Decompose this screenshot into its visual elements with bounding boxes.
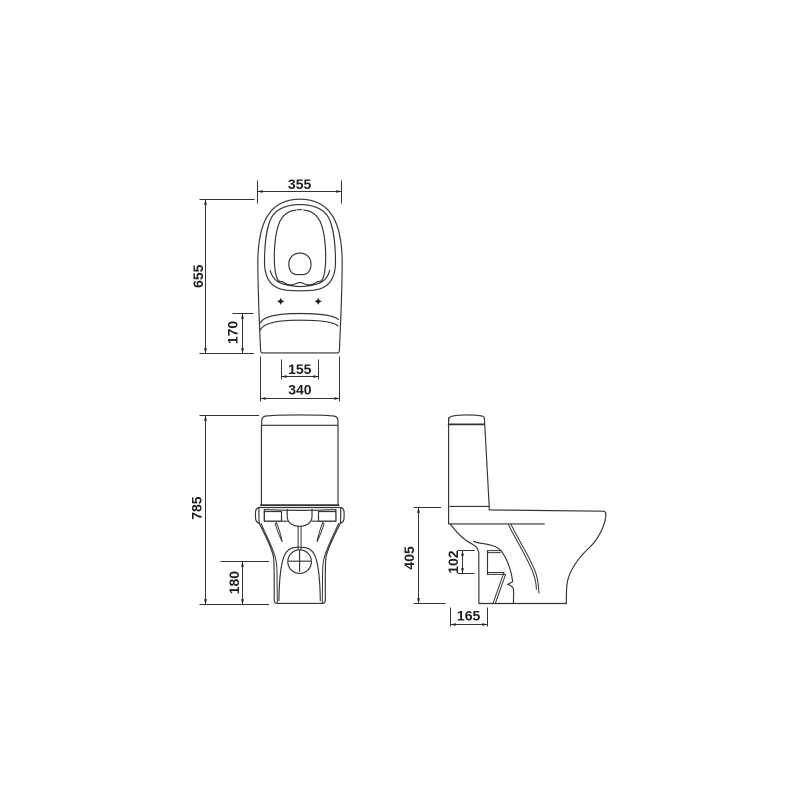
svg-text:340: 340 bbox=[288, 382, 312, 398]
svg-text:655: 655 bbox=[190, 264, 206, 288]
svg-text:170: 170 bbox=[225, 321, 241, 345]
svg-text:180: 180 bbox=[226, 571, 242, 595]
svg-text:165: 165 bbox=[457, 608, 481, 624]
svg-text:405: 405 bbox=[401, 546, 417, 570]
svg-text:102: 102 bbox=[445, 550, 461, 574]
svg-text:355: 355 bbox=[288, 176, 312, 192]
svg-text:155: 155 bbox=[288, 361, 312, 377]
svg-text:785: 785 bbox=[188, 496, 204, 520]
